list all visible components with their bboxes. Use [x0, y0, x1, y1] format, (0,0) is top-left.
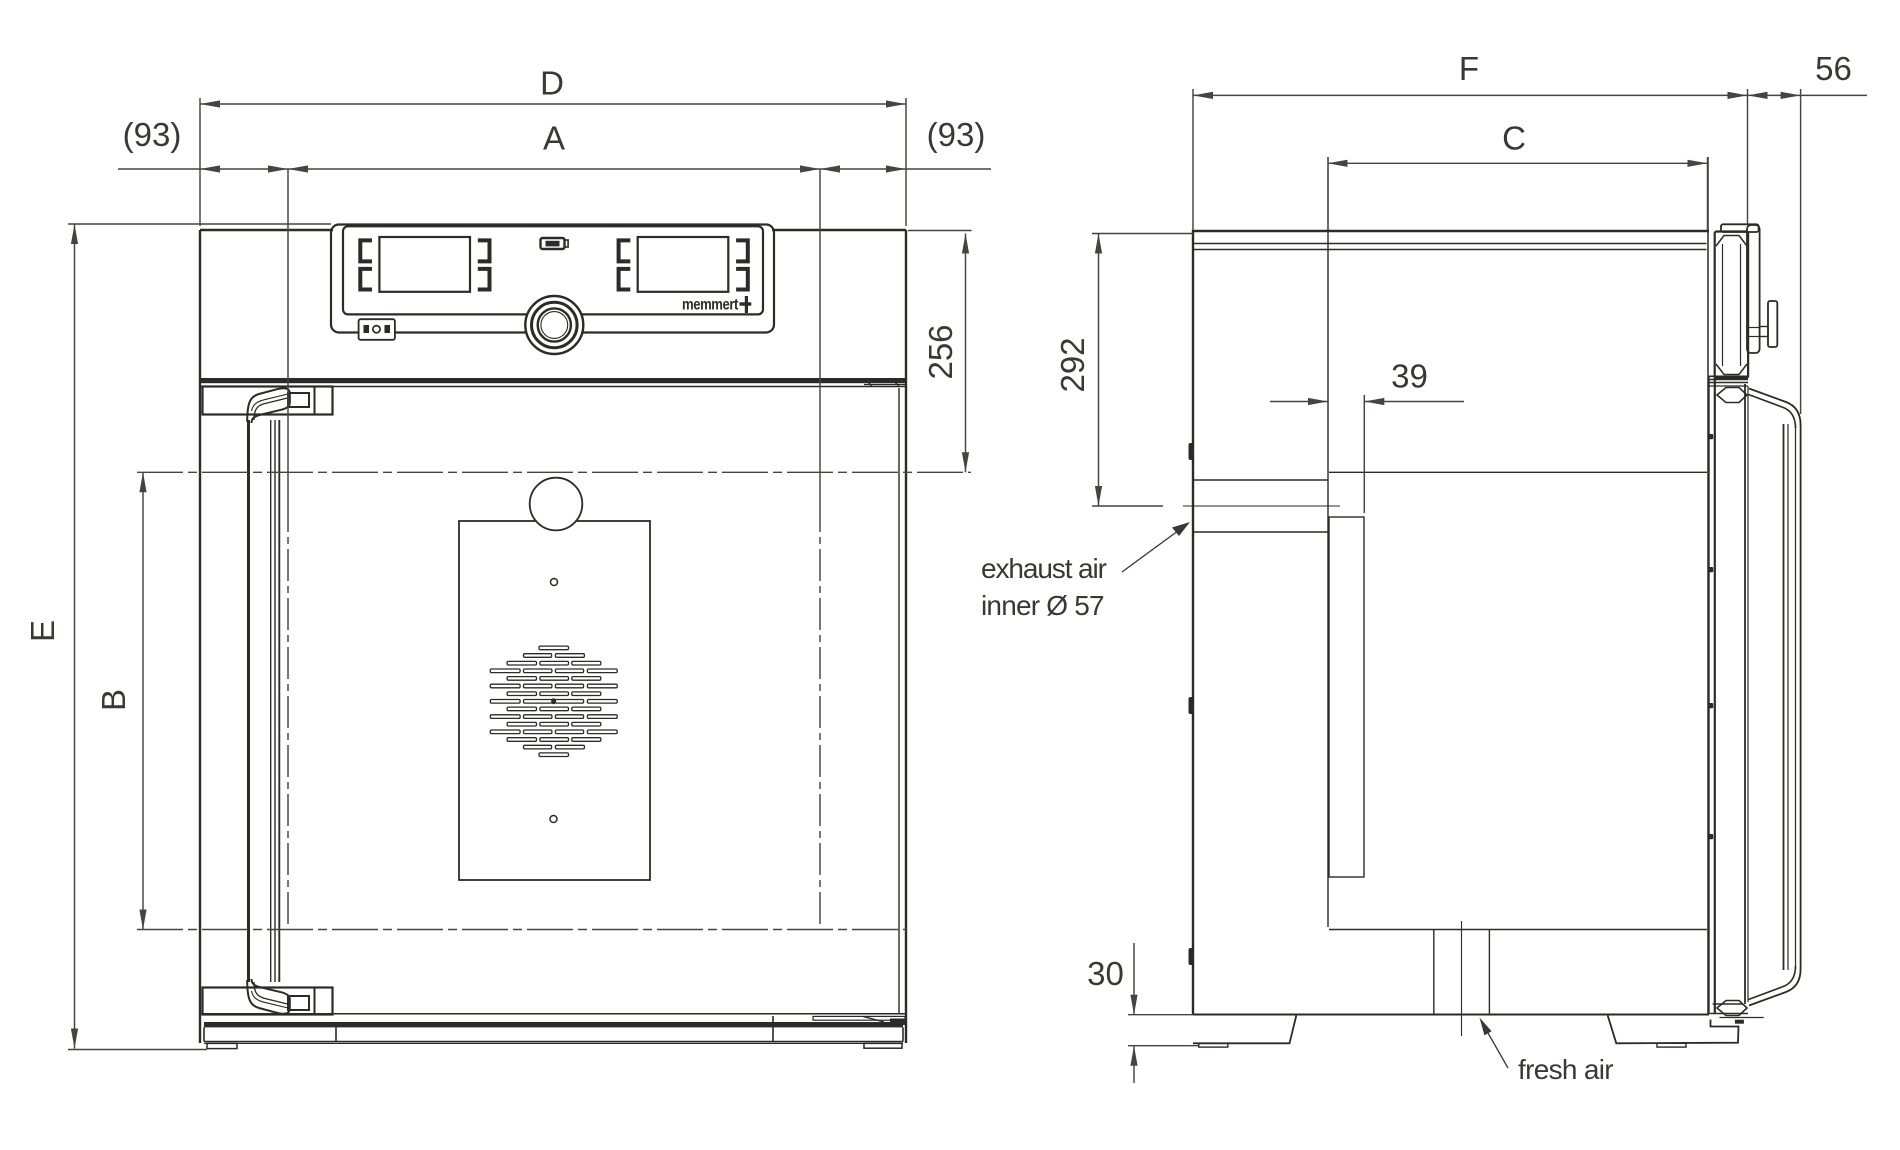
svg-text:exhaust air: exhaust air — [981, 553, 1107, 584]
svg-text:30: 30 — [1087, 955, 1124, 992]
svg-text:fresh air: fresh air — [1518, 1054, 1613, 1085]
svg-text:(93): (93) — [123, 116, 182, 153]
svg-text:C: C — [1502, 120, 1526, 157]
svg-text:39: 39 — [1391, 358, 1428, 395]
svg-text:A: A — [543, 120, 565, 157]
svg-text:D: D — [540, 65, 564, 102]
svg-text:56: 56 — [1815, 50, 1852, 87]
svg-text:256: 256 — [922, 324, 959, 379]
svg-text:inner Ø 57: inner Ø 57 — [981, 590, 1104, 621]
svg-text:E: E — [24, 620, 61, 642]
svg-text:B: B — [95, 689, 132, 711]
svg-text:(93): (93) — [927, 116, 986, 153]
svg-text:memmert: memmert — [682, 297, 739, 314]
svg-text:292: 292 — [1054, 337, 1091, 392]
svg-text:F: F — [1459, 50, 1479, 87]
